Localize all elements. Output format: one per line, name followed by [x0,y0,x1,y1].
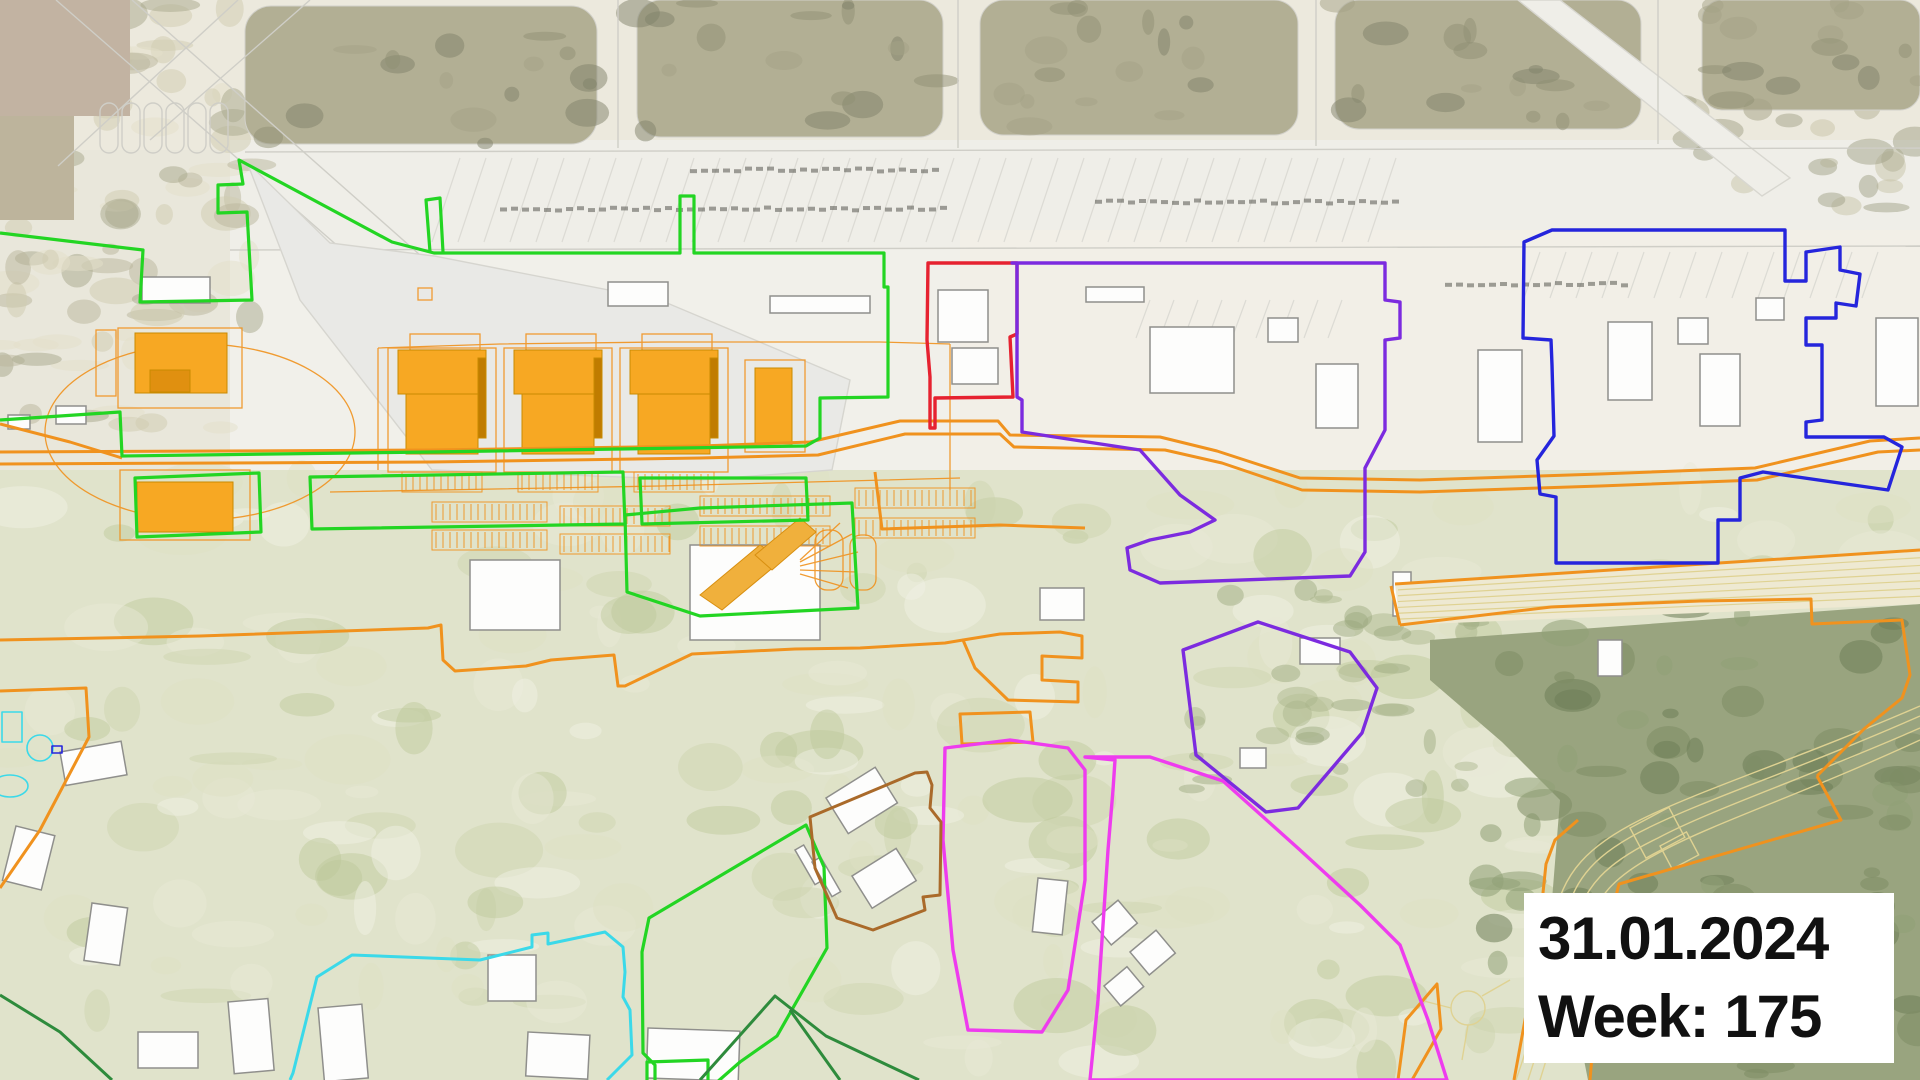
date-text: 31.01.2024 [1538,900,1894,978]
week-text: Week: 175 [1538,978,1894,1056]
date-overlay: 31.01.2024 Week: 175 [1524,893,1894,1063]
map-viewport: 31.01.2024 Week: 175 [0,0,1920,1080]
